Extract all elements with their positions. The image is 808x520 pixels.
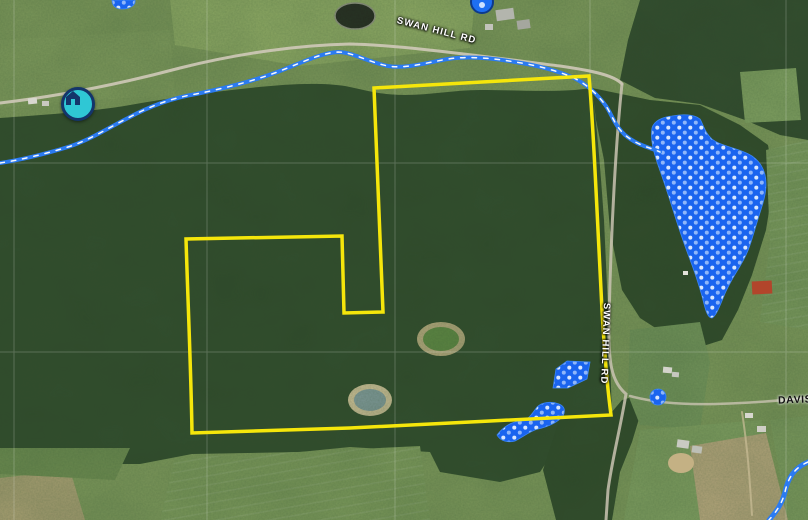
house-icon [64,90,82,106]
red-barn [752,280,773,294]
home-marker[interactable] [61,87,95,121]
tan-yard-patch [668,453,694,473]
wetland-tiny-circle [650,389,666,405]
dot-icon [479,2,485,8]
satellite-map [0,0,808,520]
map-canvas[interactable]: SWAN HILL RD SWAN HILL RD DAVIS [0,0,808,520]
